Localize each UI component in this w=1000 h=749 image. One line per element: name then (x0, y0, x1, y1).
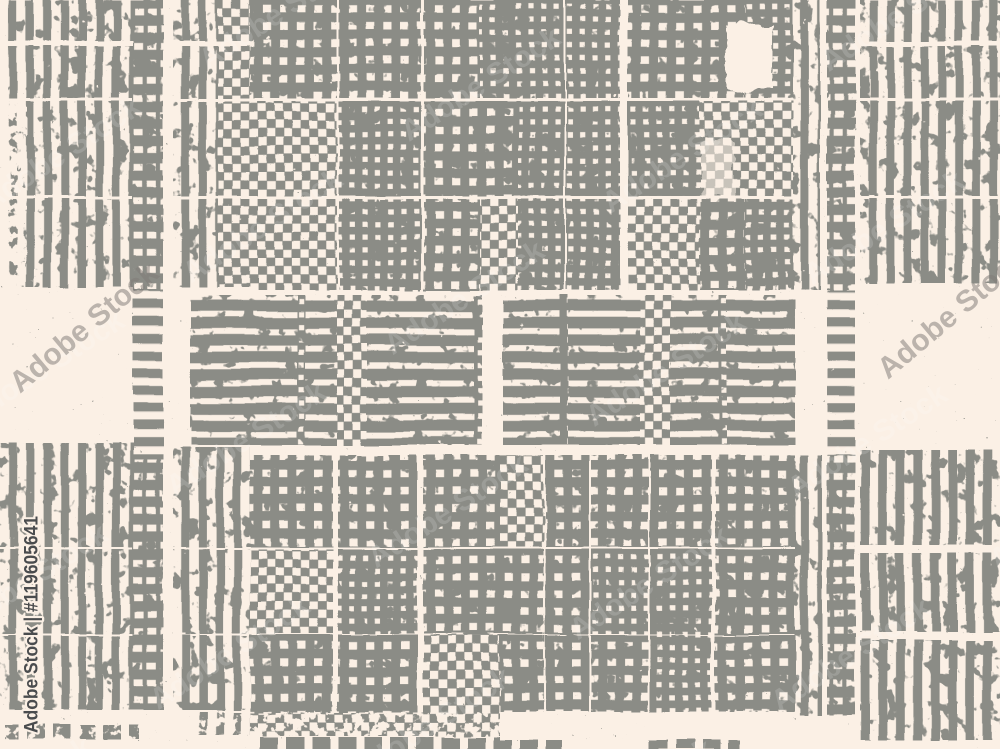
svg-text:Adobe Stock | #119605641: Adobe Stock | #119605641 (21, 516, 43, 733)
